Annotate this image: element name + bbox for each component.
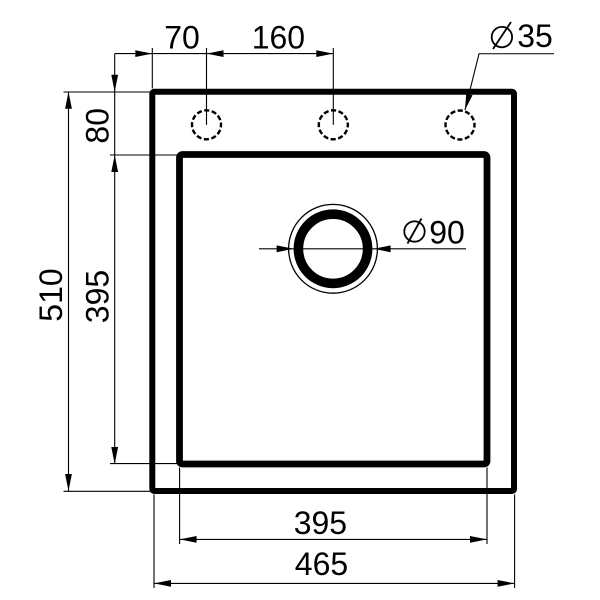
svg-text:395: 395 xyxy=(294,505,347,541)
svg-text:395: 395 xyxy=(79,270,115,323)
svg-text:70: 70 xyxy=(164,20,200,56)
svg-text:510: 510 xyxy=(33,268,69,321)
svg-text:465: 465 xyxy=(295,546,348,582)
svg-text:160: 160 xyxy=(252,20,305,56)
svg-text:35: 35 xyxy=(517,18,553,54)
svg-text:80: 80 xyxy=(79,108,115,144)
svg-text:90: 90 xyxy=(429,215,465,251)
